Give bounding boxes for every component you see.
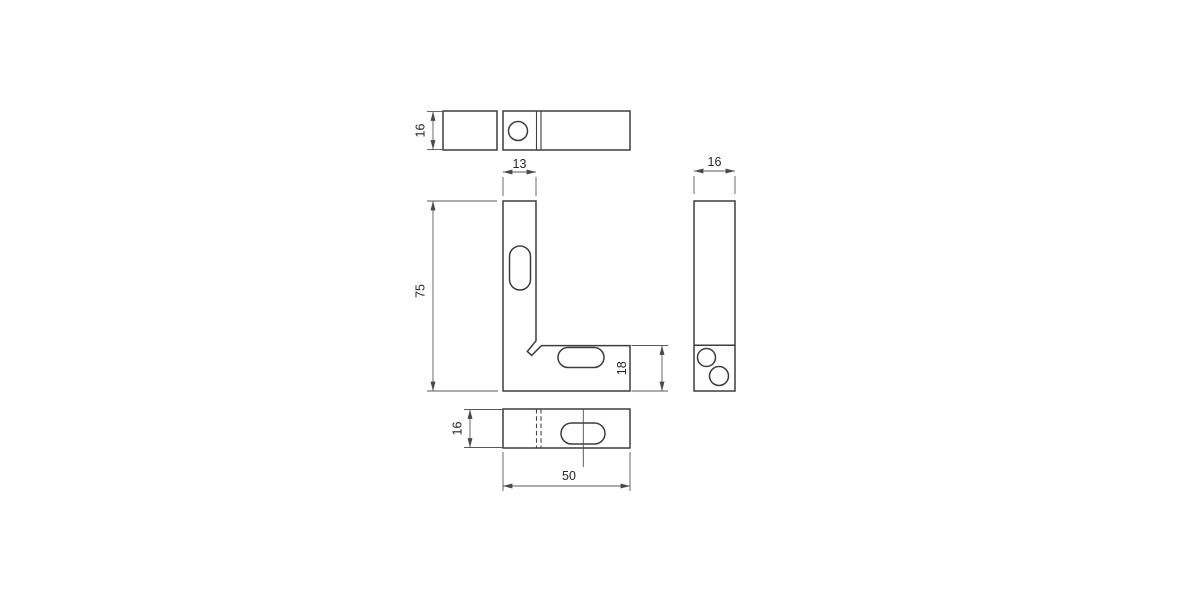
front-view-horizontal-slot — [558, 348, 604, 368]
front-view-vertical-slot — [510, 246, 531, 290]
dim-top-depth: 16 — [414, 112, 444, 150]
side-view-hole-lower — [710, 367, 729, 386]
dim-leg-width: 13 — [503, 157, 536, 196]
technical-drawing: 16 13 75 18 — [0, 0, 1181, 591]
dim-label-overall-height: 75 — [414, 284, 428, 298]
dim-label-side-width: 16 — [708, 155, 722, 169]
top-view-hole — [509, 122, 528, 141]
side-view-hole-upper — [698, 349, 716, 367]
dim-bottom-depth: 16 — [451, 410, 504, 448]
dim-label-overall-length: 50 — [562, 469, 576, 483]
dim-overall-length: 50 — [503, 452, 630, 491]
dim-side-width: 16 — [694, 155, 735, 194]
front-view-outline — [503, 201, 630, 391]
top-view-body — [503, 111, 630, 150]
dim-label-foot-height: 18 — [615, 361, 629, 375]
dim-label-top-depth: 16 — [414, 124, 428, 138]
top-view: 16 — [414, 111, 631, 150]
bottom-view: 16 50 — [451, 409, 631, 491]
top-view-left-block — [443, 111, 497, 150]
dim-foot-height: 18 — [615, 346, 668, 392]
dim-overall-height: 75 — [414, 201, 499, 391]
drawing-canvas: 16 13 75 18 — [0, 0, 1181, 591]
dim-label-leg-width: 13 — [513, 157, 527, 171]
dim-label-bottom-depth: 16 — [451, 422, 465, 436]
side-view: 16 — [694, 155, 735, 391]
front-view: 13 75 18 — [414, 157, 669, 391]
